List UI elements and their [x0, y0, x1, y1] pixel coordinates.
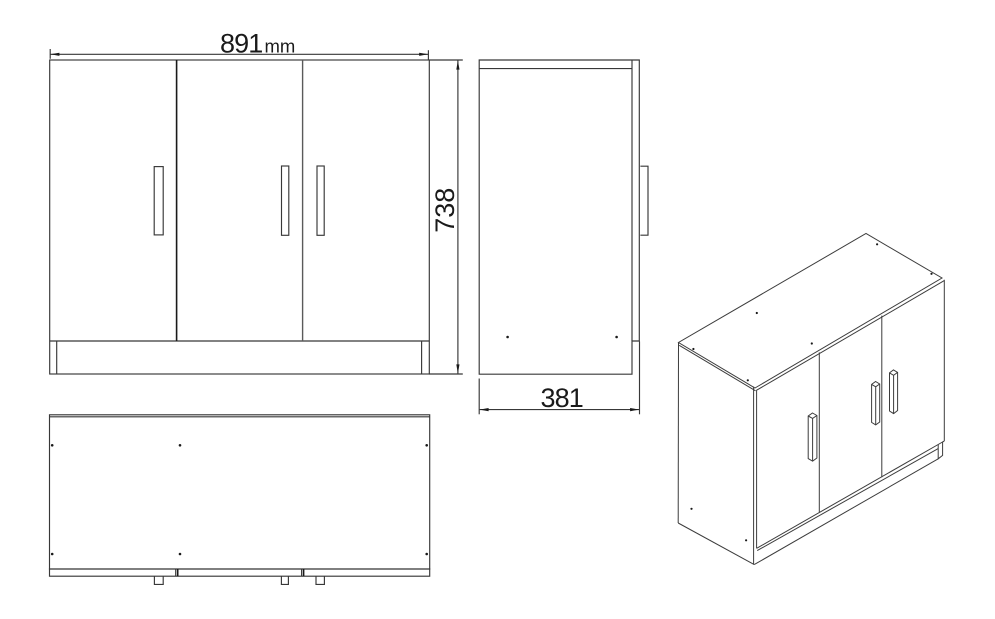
svg-text:891: 891 [220, 29, 262, 59]
svg-text:381: 381 [541, 383, 583, 413]
svg-text:mm: mm [265, 35, 296, 56]
svg-text:738: 738 [430, 188, 460, 233]
